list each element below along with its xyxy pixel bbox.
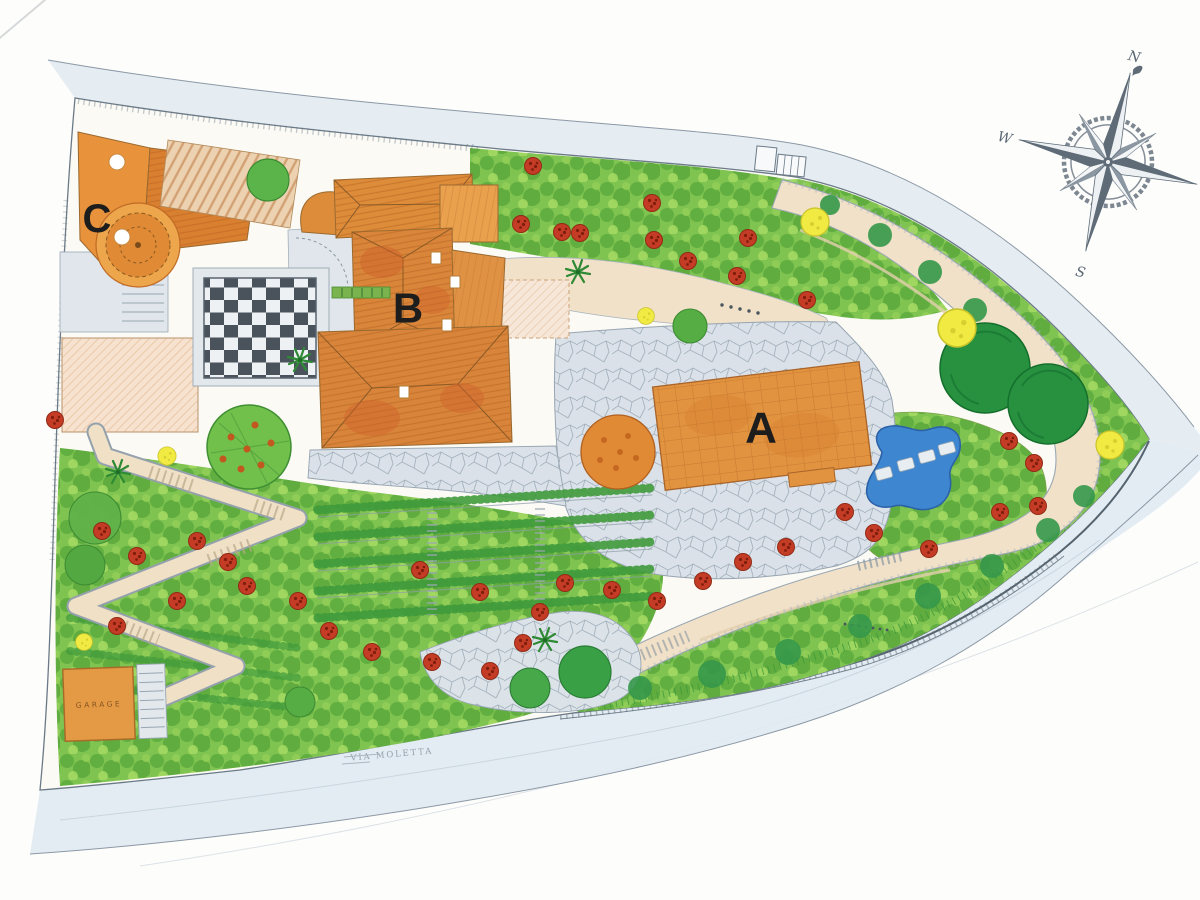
yellow-tree: [1096, 431, 1124, 459]
yellow-tree: [801, 208, 829, 236]
tree-green: [673, 309, 707, 343]
tree-green: [559, 646, 611, 698]
checkerboard-patio: [193, 268, 329, 386]
building-b-label: B: [393, 285, 423, 332]
yellow-tree: [76, 634, 93, 651]
tree-green: [247, 159, 289, 201]
garage-label: GARAGE: [76, 699, 123, 710]
building-c-label: C: [83, 197, 112, 241]
site-plan-page: VIA MOLETTA Mallela Sassella: [0, 0, 1200, 900]
garage: GARAGE: [63, 664, 168, 742]
skylight: [114, 229, 130, 245]
tree-green: [65, 545, 105, 585]
building-a-label: A: [745, 404, 777, 453]
fruit-tree: [207, 405, 291, 489]
orange-tree: [581, 415, 655, 489]
skylight: [109, 154, 125, 170]
tree-green: [285, 687, 315, 717]
yellow-tree: [638, 308, 655, 325]
swimming-pool: [867, 426, 961, 510]
tree-green: [510, 668, 550, 708]
large-dark-tree-2: [1008, 364, 1088, 444]
yellow-tree: [938, 309, 976, 347]
yellow-tree: [158, 447, 176, 465]
pergola-strip: [332, 287, 390, 298]
site-plan-drawing: VIA MOLETTA Mallela Sassella: [0, 0, 1200, 900]
